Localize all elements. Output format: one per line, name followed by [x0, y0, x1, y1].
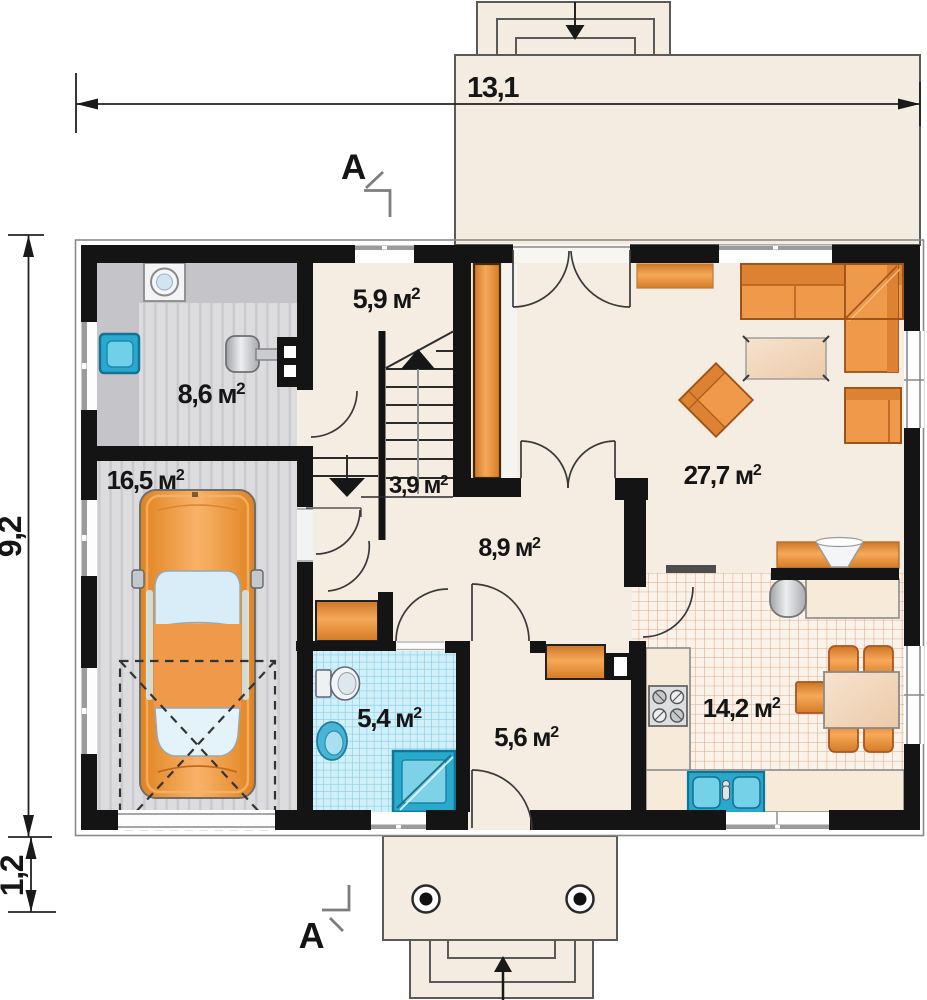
svg-text:A: A: [299, 915, 325, 956]
svg-text:9,2: 9,2: [0, 516, 28, 557]
svg-text:8,6 м2: 8,6 м2: [178, 379, 246, 409]
svg-text:14,2 м2: 14,2 м2: [703, 693, 781, 723]
svg-text:16,5 м2: 16,5 м2: [107, 465, 185, 495]
svg-text:5,6 м2: 5,6 м2: [494, 722, 559, 752]
svg-text:5,4 м2: 5,4 м2: [357, 703, 422, 733]
svg-text:A: A: [341, 148, 366, 187]
svg-text:1,2: 1,2: [0, 855, 30, 896]
svg-text:5,9 м2: 5,9 м2: [353, 284, 421, 314]
svg-text:27,7 м2: 27,7 м2: [684, 460, 762, 490]
svg-text:13,1: 13,1: [467, 72, 519, 104]
svg-text:3,9 м2: 3,9 м2: [389, 472, 448, 499]
svg-text:8,9 м2: 8,9 м2: [478, 534, 541, 562]
